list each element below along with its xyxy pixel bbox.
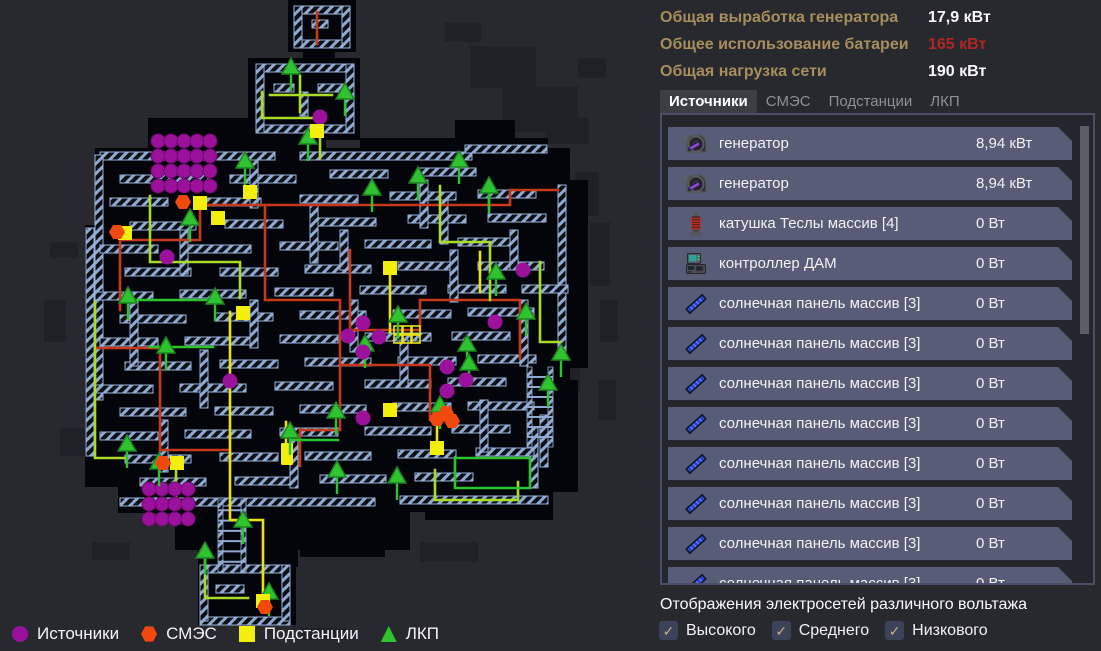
- power-stats: Общая выработка генератора 17,9 кВт Обще…: [660, 4, 1096, 85]
- row-value: 8,94 кВт: [976, 135, 1032, 152]
- power-list-row[interactable]: солнечная панель массив [3] 0 Вт: [668, 487, 1072, 520]
- legend-label: СМЭС: [166, 624, 217, 644]
- checkbox-low[interactable]: ✓: [885, 621, 904, 640]
- row-value: 0 Вт: [976, 495, 1005, 512]
- row-value: 0 Вт: [976, 255, 1005, 272]
- tab-lkp[interactable]: ЛКП: [921, 90, 968, 113]
- row-value: 0 Вт: [976, 295, 1005, 312]
- power-list-row[interactable]: солнечная панель массив [3] 0 Вт: [668, 287, 1072, 320]
- row-name: солнечная панель массив [3]: [719, 375, 920, 392]
- row-name: солнечная панель массив [3]: [719, 575, 920, 585]
- solar-panel-icon: [683, 411, 709, 437]
- solar-panel-icon: [683, 291, 709, 317]
- row-value: 0 Вт: [976, 415, 1005, 432]
- solar-panel-icon: [683, 531, 709, 557]
- generator-icon: [683, 131, 709, 157]
- checkbox-medium[interactable]: ✓: [772, 621, 791, 640]
- voltage-filter-options: ✓ Высокого ✓ Среднего ✓ Низкового: [659, 621, 988, 640]
- row-value: 0 Вт: [976, 335, 1005, 352]
- smes-hexagon-icon: [141, 626, 157, 642]
- controller-icon: [683, 251, 709, 277]
- tab-sources[interactable]: Источники: [660, 90, 757, 113]
- legend-label: Источники: [37, 624, 119, 644]
- power-list-row[interactable]: солнечная панель массив [3] 0 Вт: [668, 447, 1072, 480]
- stat-label: Общее использование батареи: [660, 36, 928, 54]
- row-value: 0 Вт: [976, 575, 1005, 585]
- list-scrollbar[interactable]: [1080, 123, 1089, 575]
- power-source-list-panel: генератор 8,94 кВт генератор 8,94 кВт ка…: [660, 113, 1095, 585]
- power-list-row[interactable]: солнечная панель массив [3] 0 Вт: [668, 407, 1072, 440]
- power-source-rows: генератор 8,94 кВт генератор 8,94 кВт ка…: [668, 127, 1072, 585]
- power-list-row[interactable]: солнечная панель массив [3] 0 Вт: [668, 527, 1072, 560]
- power-list-row[interactable]: катушка Теслы массив [4] 0 Вт: [668, 207, 1072, 240]
- voltage-option-high[interactable]: ✓ Высокого: [659, 621, 756, 640]
- power-list-row[interactable]: солнечная панель массив [3] 0 Вт: [668, 327, 1072, 360]
- solar-panel-icon: [683, 451, 709, 477]
- row-value: 8,94 кВт: [976, 175, 1032, 192]
- substation-square-icon: [239, 626, 255, 642]
- category-tabs: Источники СМЭС Подстанции ЛКП: [660, 90, 969, 113]
- stat-grid-load: Общая нагрузка сети 190 кВт: [660, 58, 1096, 85]
- voltage-option-label: Среднего: [799, 622, 869, 640]
- legend-item-substations: Подстанции: [239, 624, 359, 644]
- power-list-row[interactable]: контроллер ДАМ 0 Вт: [668, 247, 1072, 280]
- row-name: солнечная панель массив [3]: [719, 535, 920, 552]
- tesla-coil-icon: [683, 211, 709, 237]
- row-name: катушка Теслы массив [4]: [719, 215, 899, 232]
- power-list-row[interactable]: солнечная панель массив [3] 0 Вт: [668, 367, 1072, 400]
- legend-item-smes: СМЭС: [141, 624, 217, 644]
- voltage-option-medium[interactable]: ✓ Среднего: [772, 621, 869, 640]
- checkbox-high[interactable]: ✓: [659, 621, 678, 640]
- base-power-map[interactable]: [0, 0, 660, 651]
- row-name: солнечная панель массив [3]: [719, 455, 920, 472]
- voltage-option-label: Низкового: [912, 622, 988, 640]
- legend-item-sources: Источники: [12, 624, 119, 644]
- row-name: генератор: [719, 135, 789, 152]
- stat-value: 190 кВт: [928, 63, 986, 81]
- solar-panel-icon: [683, 571, 709, 586]
- generator-icon: [683, 171, 709, 197]
- stat-value: 17,9 кВт: [928, 9, 991, 27]
- scrollbar-thumb[interactable]: [1080, 126, 1089, 334]
- legend-label: Подстанции: [264, 624, 359, 644]
- solar-panel-icon: [683, 331, 709, 357]
- row-value: 0 Вт: [976, 375, 1005, 392]
- source-circle-icon: [12, 626, 28, 642]
- row-value: 0 Вт: [976, 215, 1005, 232]
- row-value: 0 Вт: [976, 535, 1005, 552]
- solar-panel-icon: [683, 491, 709, 517]
- power-list-row[interactable]: генератор 8,94 кВт: [668, 167, 1072, 200]
- power-list-row[interactable]: генератор 8,94 кВт: [668, 127, 1072, 160]
- stat-value: 165 кВт: [928, 36, 986, 54]
- row-name: генератор: [719, 175, 789, 192]
- legend-label: ЛКП: [406, 624, 439, 644]
- stat-label: Общая выработка генератора: [660, 9, 928, 27]
- power-overlay-screen: Источники СМЭС Подстанции ЛКП Общая выра…: [0, 0, 1101, 651]
- tab-smes[interactable]: СМЭС: [757, 90, 820, 113]
- voltage-option-low[interactable]: ✓ Низкового: [885, 621, 988, 640]
- legend-item-lkp: ЛКП: [381, 624, 439, 644]
- stat-battery-usage: Общее использование батареи 165 кВт: [660, 31, 1096, 58]
- map-legend: Источники СМЭС Подстанции ЛКП: [12, 624, 439, 644]
- row-name: солнечная панель массив [3]: [719, 495, 920, 512]
- row-name: солнечная панель массив [3]: [719, 335, 920, 352]
- row-value: 0 Вт: [976, 455, 1005, 472]
- solar-panel-icon: [683, 371, 709, 397]
- lkp-triangle-icon: [381, 626, 397, 642]
- power-list-row[interactable]: солнечная панель массив [3] 0 Вт: [668, 567, 1072, 585]
- row-name: контроллер ДАМ: [719, 255, 837, 272]
- stat-generator-output: Общая выработка генератора 17,9 кВт: [660, 4, 1096, 31]
- voltage-option-label: Высокого: [686, 622, 756, 640]
- voltage-filter-title: Отображения электросетей различного воль…: [660, 596, 1027, 614]
- row-name: солнечная панель массив [3]: [719, 415, 920, 432]
- stat-label: Общая нагрузка сети: [660, 63, 928, 81]
- row-name: солнечная панель массив [3]: [719, 295, 920, 312]
- tab-substations[interactable]: Подстанции: [820, 90, 922, 113]
